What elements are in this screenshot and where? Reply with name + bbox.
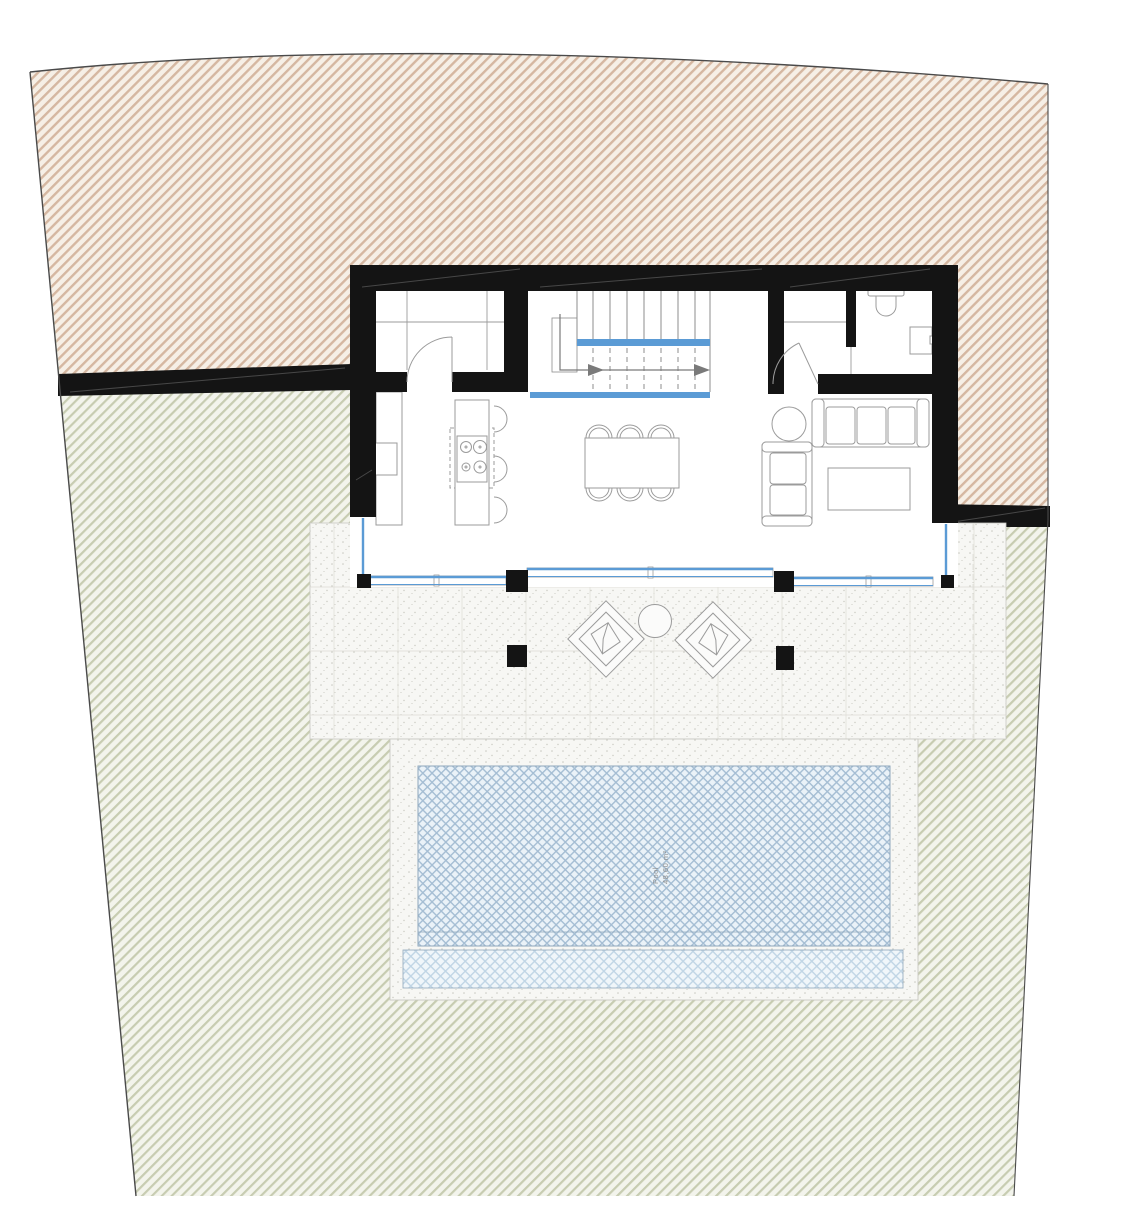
column-facade-midleft xyxy=(506,570,528,592)
site-plan-drawing: Pool 48,60 m² xyxy=(0,0,1147,1230)
wall-east xyxy=(932,265,958,523)
column-facade-right xyxy=(941,575,954,588)
pool-basin xyxy=(418,766,890,946)
bathroom-sink xyxy=(910,327,932,354)
pool-label-line1: Pool xyxy=(651,867,660,884)
wall-bath-south xyxy=(818,374,932,394)
sofa-three-seat xyxy=(812,399,929,447)
stair-landing-band xyxy=(577,339,710,346)
wall-entry-south-right xyxy=(452,372,528,392)
dining-table xyxy=(585,438,679,488)
coffee-table xyxy=(828,468,910,510)
wall-bath-partition xyxy=(846,291,856,347)
pool-label-line2: 48,60 m² xyxy=(661,850,670,884)
side-table-round xyxy=(772,407,806,441)
wall-west xyxy=(350,265,376,517)
stove xyxy=(457,436,487,482)
pool-shallow-shelf xyxy=(403,950,903,988)
pergola-post-right xyxy=(776,646,794,670)
sofa-two-seat xyxy=(762,442,812,526)
terrace-round-table xyxy=(639,605,672,638)
stair-base-band xyxy=(530,392,710,398)
floor-plan-canvas: Pool 48,60 m² xyxy=(0,0,1147,1230)
column-facade-left xyxy=(357,574,371,588)
wall-entry-south-left xyxy=(376,372,407,392)
wall-bath-west xyxy=(768,265,784,394)
toilet-bowl xyxy=(876,296,896,316)
column-facade-midright xyxy=(774,571,794,592)
pergola-post-left xyxy=(507,645,527,667)
